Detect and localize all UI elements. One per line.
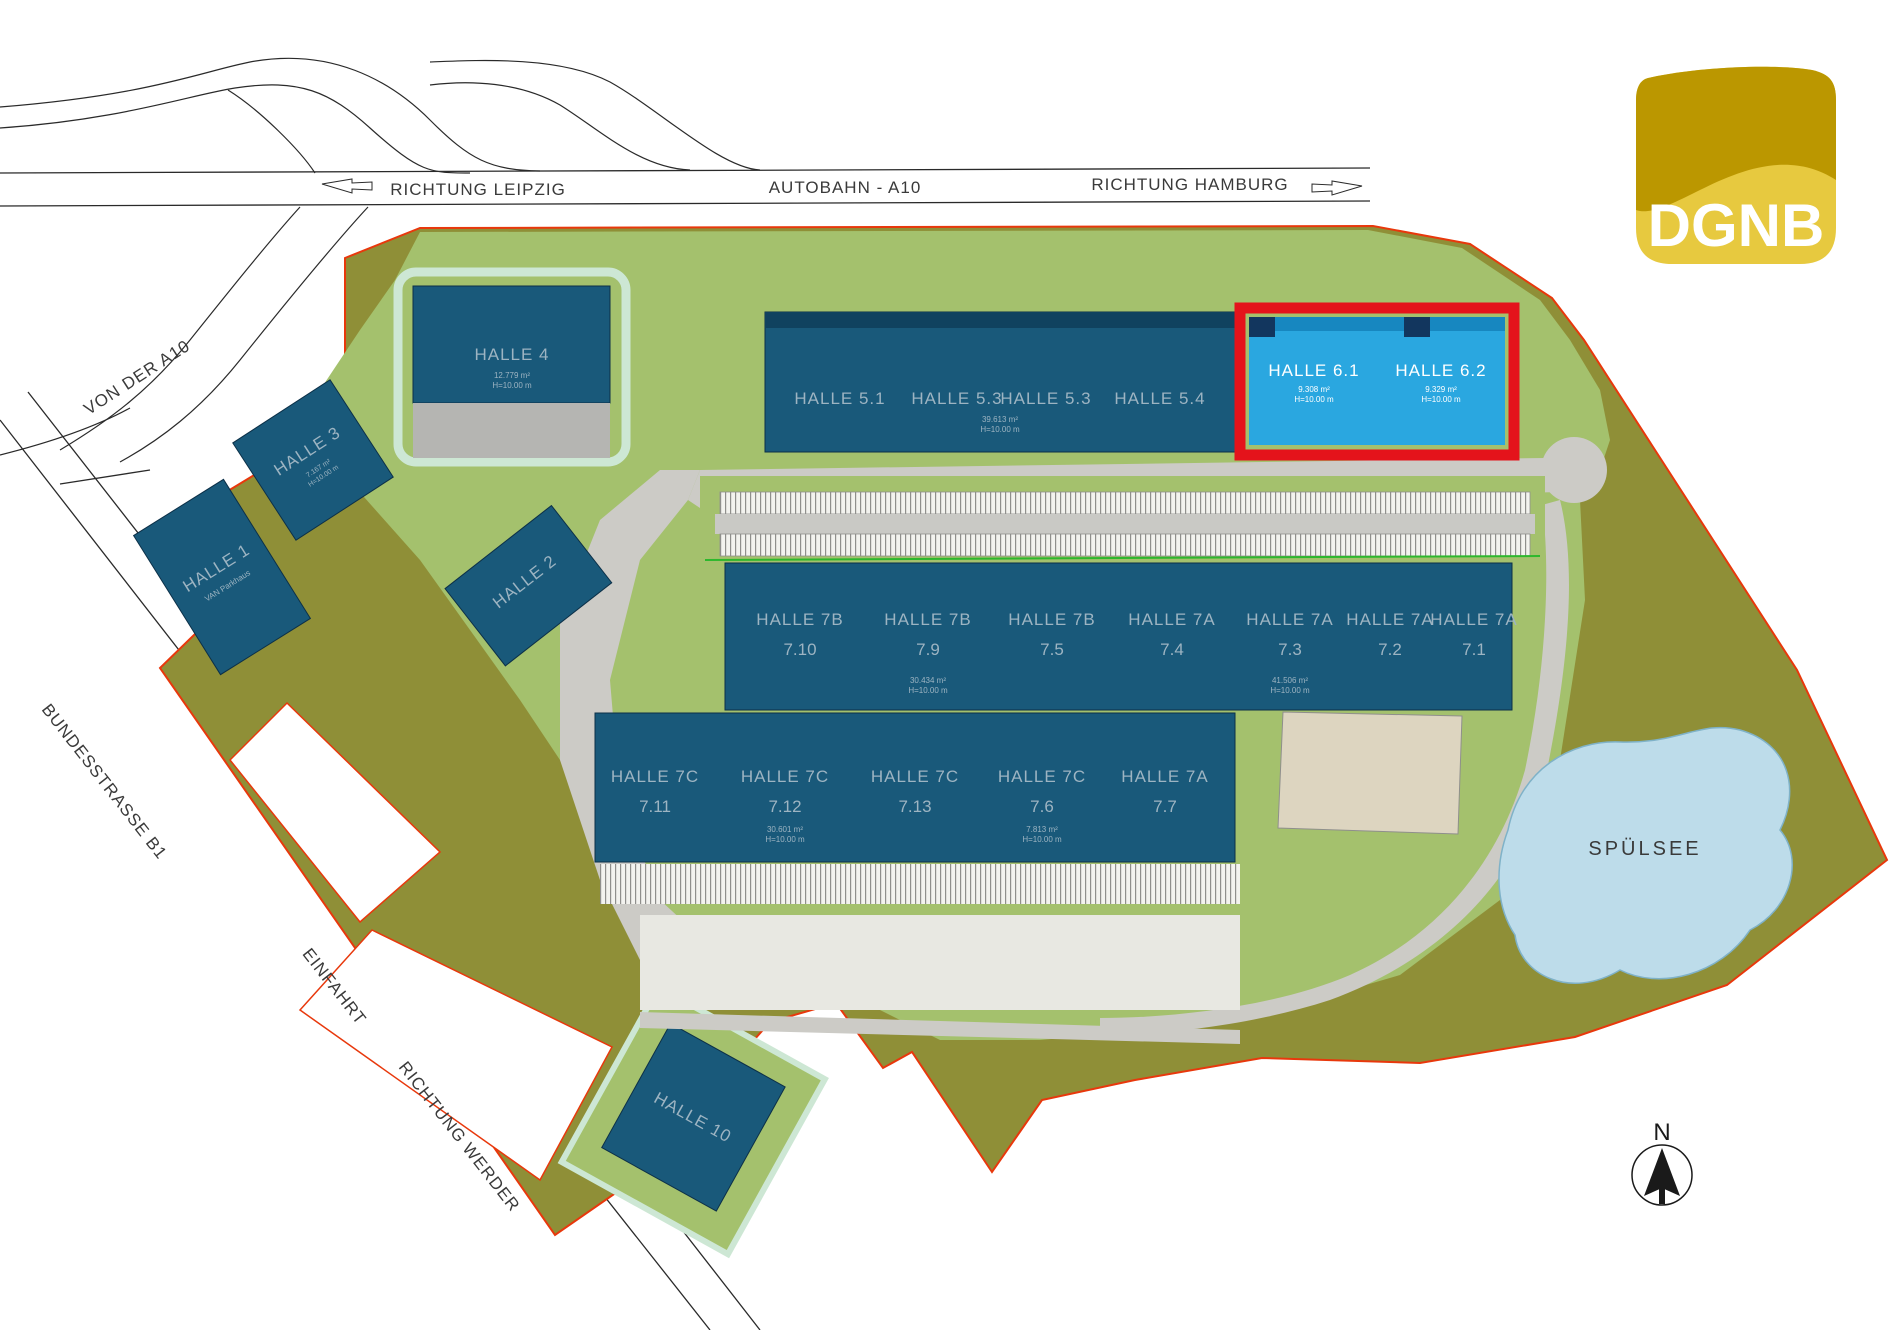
svg-text:RICHTUNG LEIPZIG: RICHTUNG LEIPZIG xyxy=(390,180,566,199)
svg-text:12.779 m²: 12.779 m² xyxy=(494,371,530,380)
svg-text:HALLE 7C: HALLE 7C xyxy=(741,767,829,786)
svg-text:HALLE 7A: HALLE 7A xyxy=(1246,610,1333,629)
svg-text:H=10.00 m: H=10.00 m xyxy=(980,425,1020,434)
svg-text:7.5: 7.5 xyxy=(1040,640,1064,659)
svg-text:7.7: 7.7 xyxy=(1153,797,1177,816)
svg-text:RICHTUNG HAMBURG: RICHTUNG HAMBURG xyxy=(1091,175,1288,194)
svg-text:7.9: 7.9 xyxy=(916,640,940,659)
svg-text:HALLE 7C: HALLE 7C xyxy=(871,767,959,786)
svg-text:N: N xyxy=(1653,1119,1670,1146)
svg-text:7.4: 7.4 xyxy=(1160,640,1184,659)
svg-text:HALLE 5.3: HALLE 5.3 xyxy=(911,389,1002,408)
svg-text:7.1: 7.1 xyxy=(1462,640,1486,659)
svg-text:H=10.00 m: H=10.00 m xyxy=(1022,835,1062,844)
svg-text:HALLE 7B: HALLE 7B xyxy=(884,610,971,629)
svg-text:9.329 m²: 9.329 m² xyxy=(1425,385,1457,394)
svg-text:7.13: 7.13 xyxy=(898,797,931,816)
svg-text:7.3: 7.3 xyxy=(1278,640,1302,659)
svg-text:7.6: 7.6 xyxy=(1030,797,1054,816)
svg-text:H=10.00 m: H=10.00 m xyxy=(492,381,532,390)
svg-text:7.12: 7.12 xyxy=(768,797,801,816)
svg-text:H=10.00 m: H=10.00 m xyxy=(1421,395,1461,404)
svg-text:HALLE 7B: HALLE 7B xyxy=(1008,610,1095,629)
svg-text:9.308 m²: 9.308 m² xyxy=(1298,385,1330,394)
svg-text:H=10.00 m: H=10.00 m xyxy=(1270,686,1310,695)
svg-text:HALLE 7C: HALLE 7C xyxy=(998,767,1086,786)
svg-text:H=10.00 m: H=10.00 m xyxy=(908,686,948,695)
svg-text:H=10.00 m: H=10.00 m xyxy=(1294,395,1334,404)
svg-text:7.813 m²: 7.813 m² xyxy=(1026,825,1058,834)
svg-text:AUTOBAHN - A10: AUTOBAHN - A10 xyxy=(769,178,922,197)
svg-text:HALLE 6.2: HALLE 6.2 xyxy=(1395,361,1486,380)
svg-text:HALLE 4: HALLE 4 xyxy=(474,345,549,364)
svg-text:7.2: 7.2 xyxy=(1378,640,1402,659)
svg-text:HALLE 7A: HALLE 7A xyxy=(1128,610,1215,629)
svg-text:HALLE 5.4: HALLE 5.4 xyxy=(1114,389,1205,408)
svg-text:HALLE 5.3: HALLE 5.3 xyxy=(1000,389,1091,408)
svg-text:H=10.00 m: H=10.00 m xyxy=(765,835,805,844)
svg-text:7.11: 7.11 xyxy=(639,797,671,816)
svg-text:SPÜLSEE: SPÜLSEE xyxy=(1588,838,1701,860)
svg-text:HALLE 7A: HALLE 7A xyxy=(1346,610,1433,629)
svg-text:DGNB: DGNB xyxy=(1648,192,1825,259)
svg-text:41.506 m²: 41.506 m² xyxy=(1272,676,1308,685)
svg-text:7.10: 7.10 xyxy=(783,640,816,659)
svg-text:30.434 m²: 30.434 m² xyxy=(910,676,946,685)
svg-text:HALLE 6.1: HALLE 6.1 xyxy=(1268,361,1359,380)
svg-text:HALLE 7B: HALLE 7B xyxy=(756,610,843,629)
svg-text:HALLE 5.1: HALLE 5.1 xyxy=(794,389,885,408)
svg-text:HALLE 7A: HALLE 7A xyxy=(1430,610,1517,629)
svg-text:HALLE 7C: HALLE 7C xyxy=(611,767,699,786)
svg-text:30.601 m²: 30.601 m² xyxy=(767,825,803,834)
svg-text:39.613 m²: 39.613 m² xyxy=(982,415,1018,424)
svg-text:HALLE 7A: HALLE 7A xyxy=(1121,767,1208,786)
